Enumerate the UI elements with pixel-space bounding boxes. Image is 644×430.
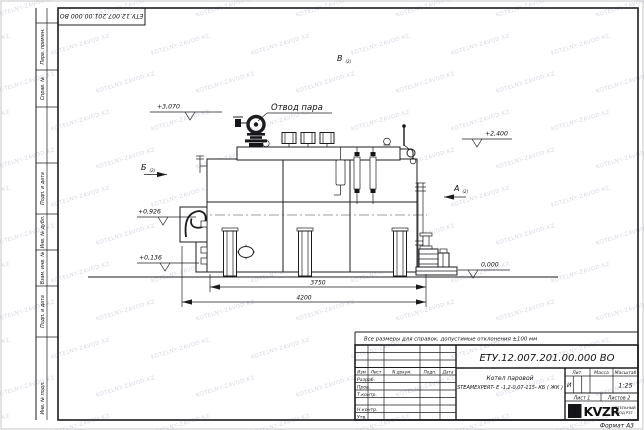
header-lit: Лит.	[571, 370, 583, 376]
drum-hatches	[282, 133, 334, 148]
col-izm: Изм	[357, 370, 366, 375]
elev-0000: 0,000	[481, 262, 499, 269]
title-block: Все размеры для справок, допустимые откл…	[355, 332, 638, 430]
margin-label-perv-primen: Перв. примен.	[40, 28, 46, 64]
header-mass: Масса	[594, 370, 609, 376]
product-name-line1: Котел паровой	[486, 375, 533, 382]
company-line1: КОТЕЛЬНЫЙ	[612, 405, 636, 410]
row-utv: Утв.	[357, 415, 367, 421]
row-prov: Пров.	[357, 385, 370, 391]
callout-steam-outlet: Отвод пара	[271, 103, 323, 113]
dim-4200: 4200	[296, 295, 311, 302]
format-label: Формат А3	[600, 423, 634, 430]
row-razrab: Разраб.	[357, 377, 375, 383]
reference-note: Все размеры для справок, допустимые откл…	[364, 337, 537, 343]
scale-value: 1:25	[618, 382, 633, 390]
product-name-line2: STEAMEXPERT- Е -1,2-0,07-115- КБ ( ЖК )	[457, 385, 563, 391]
margin-label-inv-podl: Инв. № подл.	[40, 381, 46, 414]
row-nkontr: Н.контр.	[357, 407, 378, 413]
elev-2400: +2,400	[485, 131, 508, 138]
view-label-v: В	[337, 54, 343, 63]
header-scale: Масштаб	[615, 370, 637, 376]
view-label-b: Б	[141, 163, 147, 172]
lit-value: И	[567, 382, 572, 389]
drawing-canvas: Перв. примен. Справ. № Подп. и дата Инв.…	[0, 0, 644, 430]
drawing-sheet: { "watermark": { "text": "KOTELNY-ZAVOD.…	[0, 0, 644, 430]
sheet-cell: Лист 1	[573, 396, 591, 402]
kvzr-logo: KVZR KVZR КОТЕЛЬНЫЙ ЗАВОД РЗТ	[568, 404, 636, 419]
col-list: Лист	[370, 370, 382, 375]
margin-label-podp-data-1: Подп. и дата	[40, 172, 46, 205]
margin-label-inv-dubl: Инв. № дубл.	[40, 216, 46, 249]
view-label-v-ref: (2)	[346, 59, 352, 64]
kvzr-logo-mark-text: KVZR	[573, 405, 577, 416]
col-doc: N докум.	[392, 370, 411, 375]
top-stamp-doc-number: ЕТУ.12.007.201.00.000 ВО	[60, 12, 144, 19]
col-data: Дата	[442, 370, 454, 375]
elev-3070: +3,070	[157, 104, 180, 111]
elev-0136: +0,136	[139, 255, 162, 262]
sheets-cell: Листов 2	[607, 396, 631, 402]
steam-valve	[233, 117, 267, 148]
view-label-a-ref: (2)	[463, 189, 469, 194]
view-label-b-ref: (2)	[150, 168, 156, 173]
feed-pump	[416, 233, 457, 275]
elev-0926: +0,926	[138, 209, 161, 216]
company-line2: ЗАВОД РЗТ	[612, 411, 633, 415]
margin-label-vzam-inv: Взам. инв. №	[40, 252, 46, 285]
view-label-a: А	[453, 184, 459, 193]
dim-3750: 3750	[310, 280, 325, 287]
row-tkontr: Т.контр.	[357, 392, 377, 398]
margin-label-podp-data-2: Подп. и дата	[40, 295, 46, 328]
boiler-side-view	[88, 117, 558, 278]
margin-label-sprav-no: Справ. №	[40, 77, 46, 100]
col-podp: Подп.	[424, 370, 437, 375]
title-doc-number: ЕТУ.12.007.201.00.000 ВО	[479, 353, 614, 364]
